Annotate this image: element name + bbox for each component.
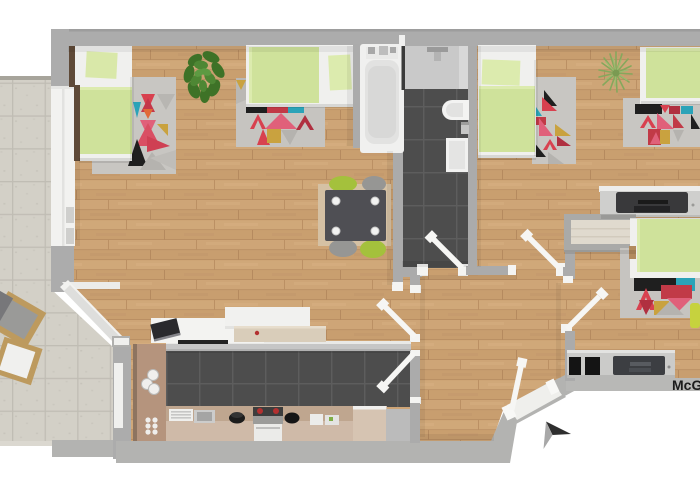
svg-text:McGrat: McGrat xyxy=(672,377,700,393)
